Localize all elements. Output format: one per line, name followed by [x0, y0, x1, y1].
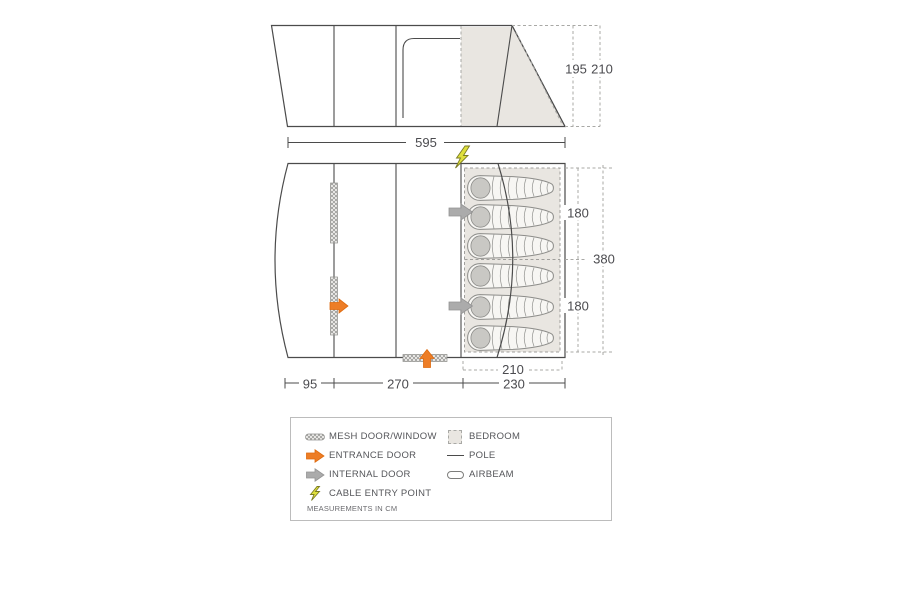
dim-595-label: 595: [415, 135, 437, 150]
mesh-door-window-icon: [301, 433, 329, 441]
tent-floorplan-diagram: 595 195 210 180 180 380 210 95 270 230 M…: [0, 0, 900, 600]
dim-380-label: 380: [593, 252, 615, 267]
legend-item-bedroom: BEDROOM: [441, 427, 520, 446]
legend-label: CABLE ENTRY POINT: [329, 488, 431, 499]
internal-door-icon: [301, 468, 329, 482]
dim-210-height-label: 210: [591, 62, 613, 77]
legend-right-column: BEDROOM POLE AIRBEAM: [441, 427, 520, 484]
dim-195-label: 195: [565, 62, 587, 77]
entrance-door-icon: [301, 449, 329, 463]
floor-plan: [275, 146, 565, 368]
pole-icon: [441, 455, 469, 456]
legend-label: AIRBEAM: [469, 469, 514, 480]
legend-item-mesh: MESH DOOR/WINDOW: [301, 427, 437, 446]
legend-label: POLE: [469, 450, 496, 461]
legend-box: MESH DOOR/WINDOW ENTRANCE DOOR INTERNAL …: [290, 417, 612, 521]
side-view-bedroom-shade: [461, 27, 565, 126]
dim-230-label: 230: [503, 377, 525, 392]
dim-180-bottom-label: 180: [567, 299, 589, 314]
dim-210-bedroom-label: 210: [502, 362, 524, 377]
dim-180-top-label: 180: [567, 206, 589, 221]
airbeam-icon: [441, 471, 469, 479]
legend-item-cable: CABLE ENTRY POINT: [301, 484, 437, 503]
legend-label: MESH DOOR/WINDOW: [329, 431, 437, 442]
legend-label: BEDROOM: [469, 431, 520, 442]
legend-item-pole: POLE: [441, 446, 520, 465]
cable-entry-point-icon: [301, 486, 329, 501]
legend-label: INTERNAL DOOR: [329, 469, 411, 480]
dim-270-label: 270: [387, 377, 409, 392]
measurements-note: MEASUREMENTS IN CM: [307, 504, 397, 513]
mesh-door-window-strip: [331, 183, 338, 243]
bedroom-icon: [441, 430, 469, 444]
legend-item-airbeam: AIRBEAM: [441, 465, 520, 484]
legend-item-entrance: ENTRANCE DOOR: [301, 446, 437, 465]
legend-left-column: MESH DOOR/WINDOW ENTRANCE DOOR INTERNAL …: [301, 427, 437, 503]
dim-95-label: 95: [303, 377, 317, 392]
legend-item-internal: INTERNAL DOOR: [301, 465, 437, 484]
legend-label: ENTRANCE DOOR: [329, 450, 416, 461]
side-view: [272, 26, 601, 127]
